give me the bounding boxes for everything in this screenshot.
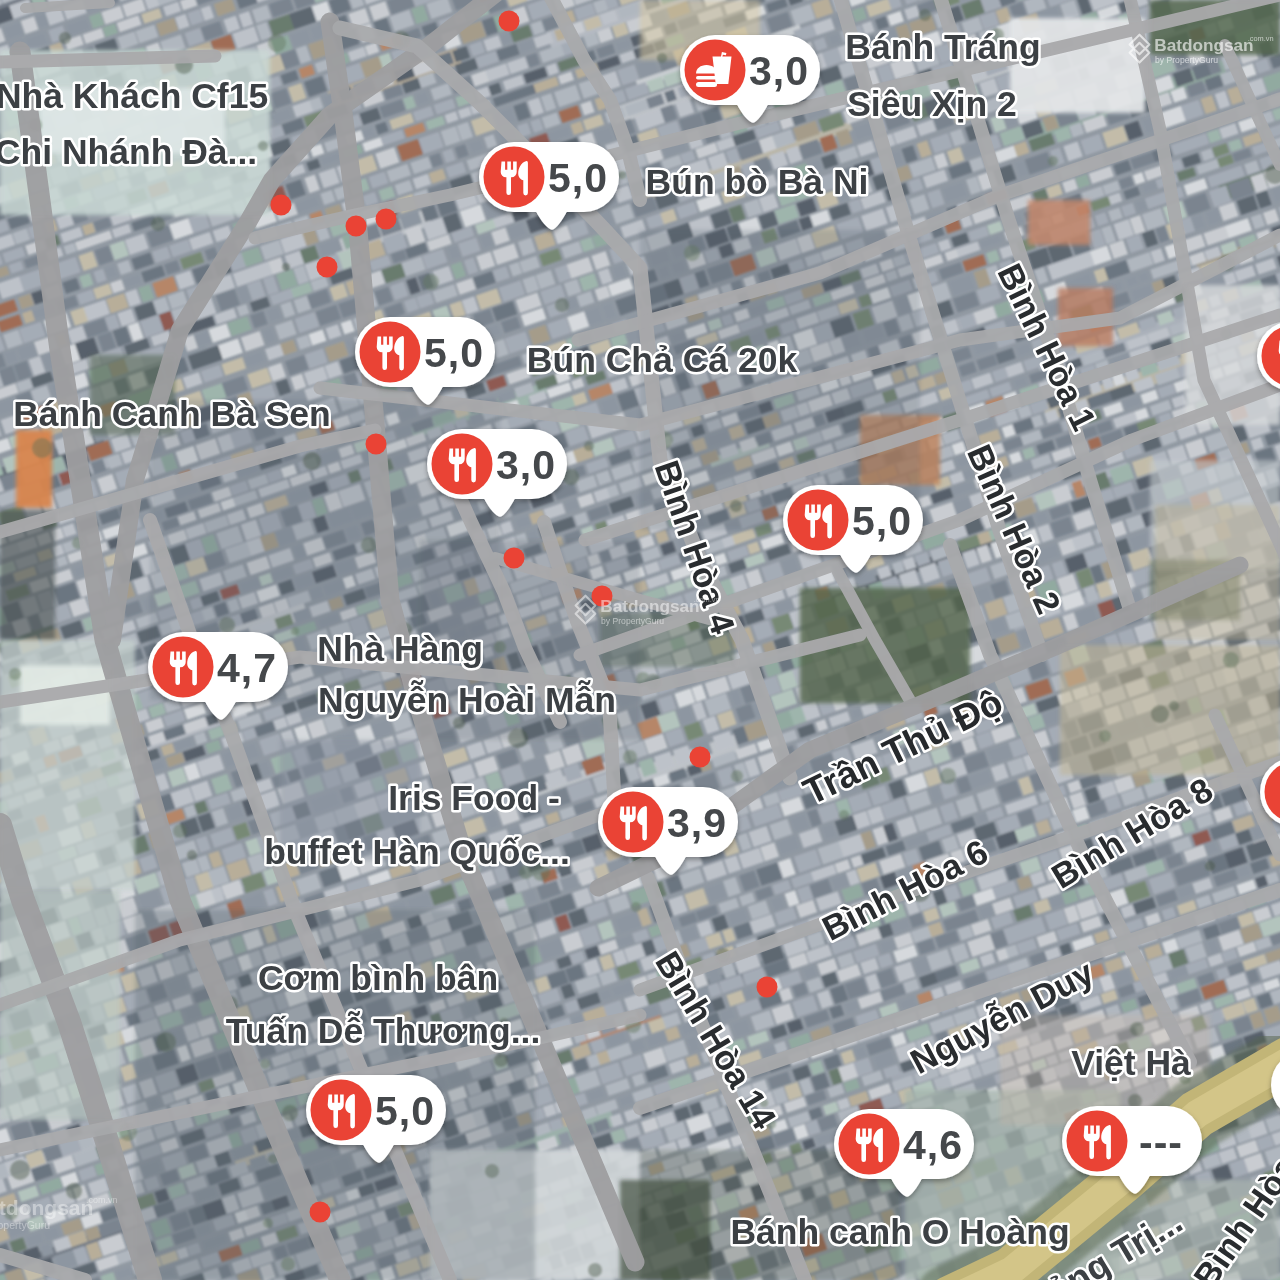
- svg-text:4,7: 4,7: [217, 645, 277, 691]
- svg-text:Nguyễn Hoài Mẫn: Nguyễn Hoài Mẫn: [318, 680, 616, 720]
- svg-text:4,6: 4,6: [903, 1122, 963, 1168]
- svg-text:Siêu Xịn 2: Siêu Xịn 2: [847, 84, 1017, 124]
- svg-text:by PropertyGuru: by PropertyGuru: [1155, 55, 1218, 65]
- svg-text:5,0: 5,0: [375, 1088, 435, 1134]
- svg-text:Bánh canh O Hoàng: Bánh canh O Hoàng: [730, 1212, 1069, 1252]
- svg-text:by PropertyGuru: by PropertyGuru: [0, 1219, 50, 1231]
- svg-text:5,0: 5,0: [852, 498, 912, 544]
- svg-text:Batdongsan: Batdongsan: [1154, 35, 1253, 55]
- svg-text:Batdongsan: Batdongsan: [600, 596, 699, 616]
- svg-text:.com.vn: .com.vn: [694, 595, 720, 604]
- svg-text:Bún Chả Cá 20k: Bún Chả Cá 20k: [527, 340, 798, 380]
- svg-text:5,0: 5,0: [548, 155, 608, 201]
- svg-text:Nhà Hàng: Nhà Hàng: [317, 629, 483, 669]
- svg-text:buffet Hàn Quốc...: buffet Hàn Quốc...: [264, 832, 570, 872]
- svg-text:3,0: 3,0: [749, 48, 809, 94]
- svg-text:Iris Food -: Iris Food -: [388, 778, 560, 818]
- svg-text:Bánh Canh Bà Sen: Bánh Canh Bà Sen: [13, 394, 331, 434]
- svg-text:---: ---: [1139, 1119, 1183, 1165]
- svg-text:3,9: 3,9: [667, 800, 727, 846]
- svg-text:Chi Nhánh Đà...: Chi Nhánh Đà...: [0, 132, 257, 172]
- svg-text:Tuấn Dễ Thương...: Tuấn Dễ Thương...: [226, 1011, 541, 1051]
- svg-text:Bánh Tráng: Bánh Tráng: [845, 27, 1040, 67]
- svg-text:by PropertyGuru: by PropertyGuru: [601, 616, 664, 626]
- svg-text:Batdongsan: Batdongsan: [0, 1196, 93, 1219]
- svg-text:5,0: 5,0: [424, 330, 484, 376]
- svg-text:Cơm bình bân: Cơm bình bân: [258, 958, 498, 998]
- svg-text:3,0: 3,0: [496, 442, 556, 488]
- svg-text:.com.vn: .com.vn: [86, 1195, 118, 1205]
- svg-text:Nhà Khách Cf15: Nhà Khách Cf15: [0, 76, 268, 116]
- svg-text:Bún bò Bà Ni: Bún bò Bà Ni: [646, 162, 869, 202]
- svg-text:.com.vn: .com.vn: [1248, 34, 1274, 43]
- svg-text:Việt Hà: Việt Hà: [1071, 1043, 1191, 1083]
